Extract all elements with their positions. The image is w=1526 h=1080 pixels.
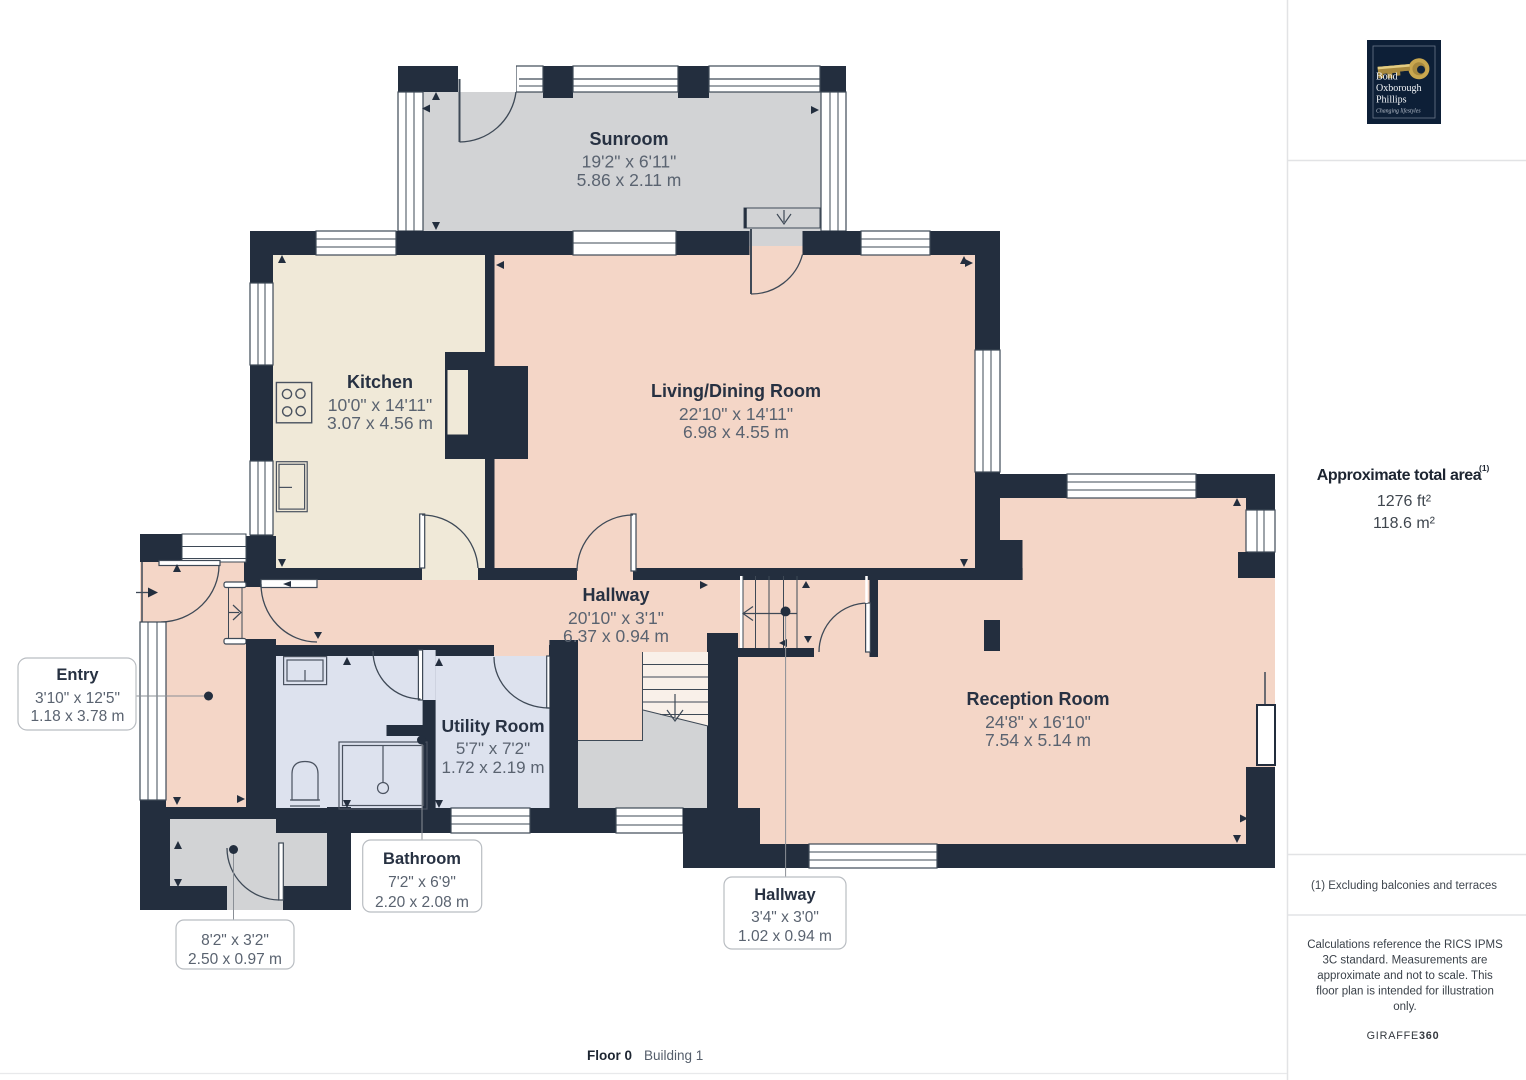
svg-text:5'7" x 7'2": 5'7" x 7'2"	[456, 739, 530, 758]
svg-text:Bathroom: Bathroom	[383, 850, 461, 868]
svg-text:Reception Room: Reception Room	[966, 689, 1109, 709]
svg-text:Hallway: Hallway	[582, 585, 649, 605]
svg-text:Living/Dining Room: Living/Dining Room	[651, 381, 821, 401]
svg-text:22'10" x 14'11": 22'10" x 14'11"	[679, 404, 793, 424]
svg-text:floor plan is intended for ill: floor plan is intended for illustration	[1316, 986, 1494, 998]
svg-text:1.72 x 2.19 m: 1.72 x 2.19 m	[441, 758, 544, 777]
svg-text:Bond: Bond	[1376, 72, 1398, 83]
svg-text:3.07 x 4.56 m: 3.07 x 4.56 m	[327, 413, 433, 433]
svg-text:5.86 x 2.11 m: 5.86 x 2.11 m	[577, 170, 682, 190]
svg-text:Phillips: Phillips	[1376, 95, 1407, 106]
svg-text:1.18 x 3.78 m: 1.18 x 3.78 m	[31, 708, 125, 725]
svg-text:Calculations reference the RIC: Calculations reference the RICS IPMS	[1307, 939, 1503, 951]
svg-text:6.37 x 0.94 m: 6.37 x 0.94 m	[563, 626, 669, 646]
svg-text:7'2" x 6'9": 7'2" x 6'9"	[388, 874, 456, 891]
svg-text:20'10" x 3'1": 20'10" x 3'1"	[568, 608, 664, 628]
svg-text:Building 1: Building 1	[644, 1048, 703, 1063]
svg-text:3'4" x 3'0": 3'4" x 3'0"	[751, 909, 819, 926]
svg-text:Sunroom: Sunroom	[590, 129, 669, 149]
svg-text:(1): (1)	[1479, 463, 1490, 473]
svg-text:3C standard. Measurements are: 3C standard. Measurements are	[1323, 955, 1488, 967]
svg-text:2.20 x 2.08 m: 2.20 x 2.08 m	[375, 894, 469, 911]
svg-text:6.98 x 4.55 m: 6.98 x 4.55 m	[683, 422, 789, 442]
svg-text:3'10" x 12'5": 3'10" x 12'5"	[35, 690, 120, 707]
svg-text:Kitchen: Kitchen	[347, 372, 413, 392]
svg-text:GIRAFFE360: GIRAFFE360	[1367, 1030, 1440, 1042]
svg-text:Floor 0: Floor 0	[587, 1048, 632, 1063]
svg-text:8'2" x 3'2": 8'2" x 3'2"	[201, 932, 269, 949]
svg-text:Oxborough: Oxborough	[1376, 83, 1422, 94]
svg-text:118.6 m²: 118.6 m²	[1373, 515, 1436, 532]
svg-text:7.54 x 5.14 m: 7.54 x 5.14 m	[985, 730, 1091, 750]
svg-text:approximate and not to scale.: approximate and not to scale. This	[1317, 970, 1493, 982]
svg-text:24'8" x 16'10": 24'8" x 16'10"	[985, 712, 1091, 732]
svg-text:1276 ft²: 1276 ft²	[1377, 493, 1432, 510]
svg-text:Approximate total area: Approximate total area	[1317, 467, 1482, 484]
svg-text:2.50 x 0.97 m: 2.50 x 0.97 m	[188, 951, 282, 968]
svg-text:10'0" x 14'11": 10'0" x 14'11"	[328, 395, 432, 415]
svg-text:(1) Excluding balconies and te: (1) Excluding balconies and terraces	[1311, 880, 1497, 892]
svg-text:Changing lifestyles: Changing lifestyles	[1376, 108, 1421, 115]
svg-text:1.02 x 0.94 m: 1.02 x 0.94 m	[738, 928, 832, 945]
svg-text:Hallway: Hallway	[754, 886, 816, 904]
svg-text:only.: only.	[1393, 1001, 1416, 1013]
svg-text:Utility Room: Utility Room	[441, 716, 544, 736]
svg-text:19'2" x 6'11": 19'2" x 6'11"	[582, 152, 677, 172]
svg-text:Entry: Entry	[56, 666, 99, 684]
